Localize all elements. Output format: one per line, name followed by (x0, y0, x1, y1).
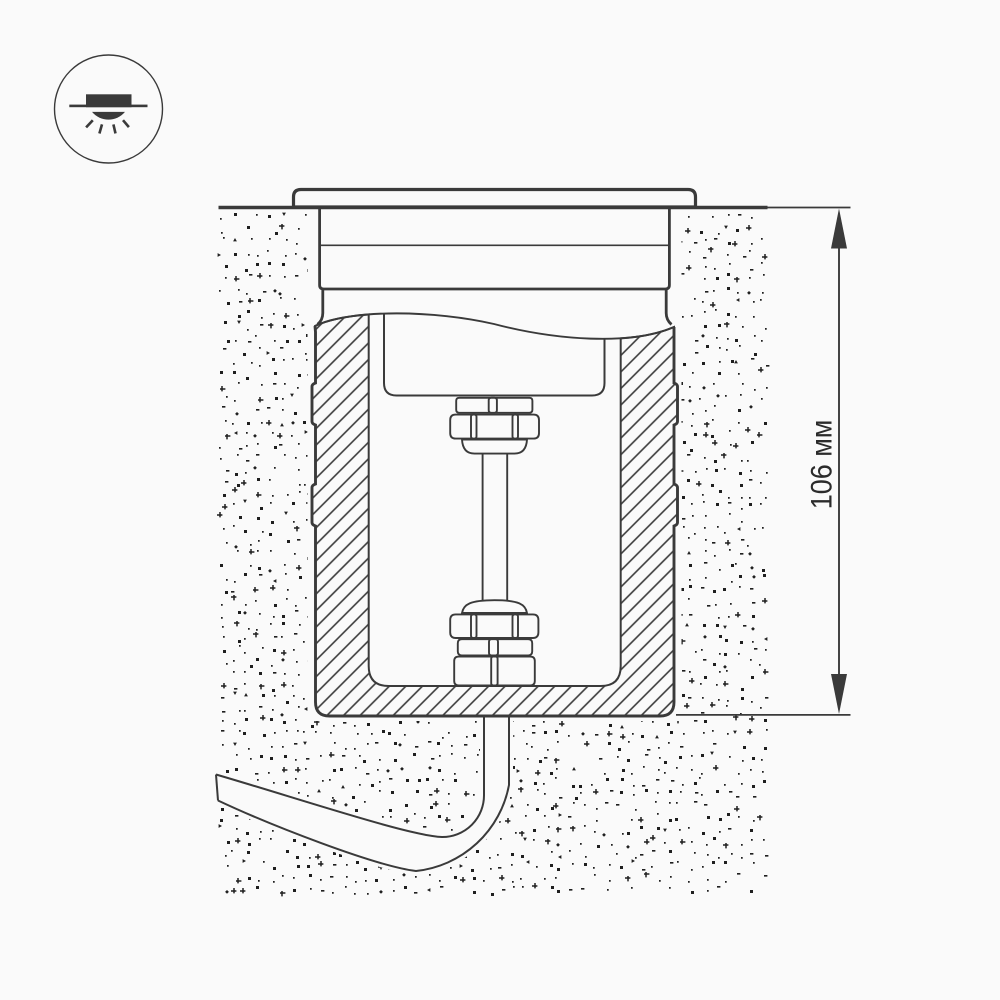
svg-text:106 мм: 106 мм (805, 420, 839, 510)
